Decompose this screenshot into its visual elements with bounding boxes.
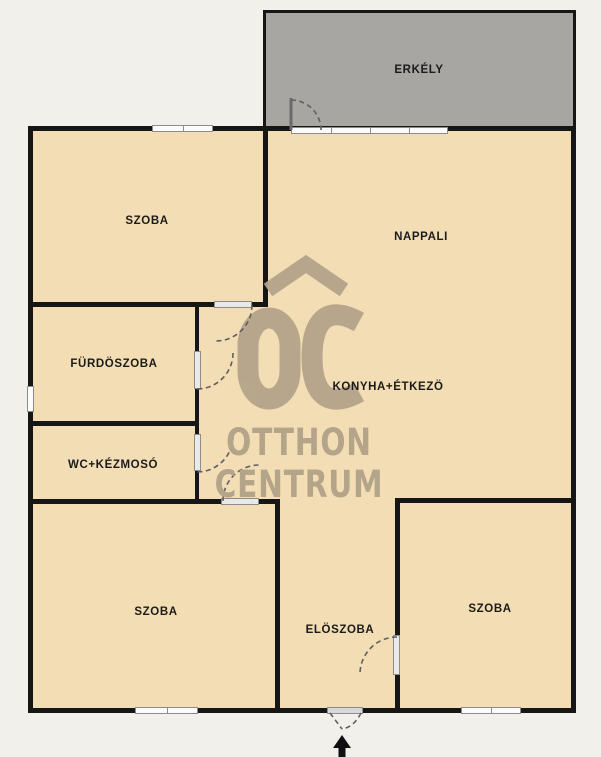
wall-furdo-wc-divider: [33, 421, 195, 426]
wall-eloszoba-szoba-a: [395, 503, 400, 636]
room-label-eloszoba: ELÖSZOBA: [306, 624, 375, 636]
wall-eloszoba-szoba-b: [395, 674, 400, 708]
room-label-furdoszoba: FÜRDÖSZOBA: [70, 358, 157, 370]
window-divider: [491, 708, 492, 713]
window-divider: [370, 128, 371, 133]
door-leaf-entrance: [327, 707, 363, 714]
wall-szoba-bl-right: [275, 503, 280, 708]
floorplan-canvas: OTTHON CENTRUM ERKÉLY SZOBA NAPPALI FÜRD…: [0, 0, 601, 757]
room-label-wc-kezmoso: WC+KÉZMOSÓ: [68, 459, 158, 471]
wall-furdo-right-a: [195, 307, 199, 352]
wall-szoba-tl-bottom-a: [33, 302, 214, 307]
room-label-nappali: NAPPALI: [394, 231, 448, 243]
room-label-konyha-etkezo: KONYHA+ÉTKEZÖ: [333, 381, 444, 393]
window-szoba-bl: [135, 707, 198, 714]
door-leaf-szoba-br: [393, 635, 400, 675]
room-label-erkely: ERKÉLY: [394, 64, 443, 76]
watermark-line2: CENTRUM: [215, 466, 384, 503]
room-label-szoba-bottom-left: SZOBA: [134, 606, 177, 618]
window-divider: [183, 126, 184, 131]
wall-outer-left: [28, 126, 33, 713]
room-label-szoba-bottom-right: SZOBA: [468, 603, 511, 615]
door-leaf-wc: [194, 434, 201, 471]
window-divider: [167, 708, 168, 713]
window-szoba-tl: [152, 125, 213, 132]
entrance-arrow-icon: [333, 735, 351, 757]
wall-szoba-tl-bottom-b: [252, 302, 268, 307]
room-label-szoba-top-left: SZOBA: [125, 215, 168, 227]
apartment-interior: [28, 126, 576, 713]
window-divider: [409, 128, 410, 133]
wall-szoba-br-top: [395, 498, 576, 503]
window-szoba-br: [461, 707, 521, 714]
window-balcony-glazing: [291, 127, 448, 134]
window-divider: [331, 128, 332, 133]
door-line-entrance: [330, 713, 342, 729]
wall-szoba-bl-top-a: [33, 499, 223, 504]
door-leaf-furdoszoba: [194, 351, 201, 389]
door-arc-entrance: [342, 713, 361, 729]
watermark-line1: OTTHON: [226, 424, 372, 461]
window-furdoszoba: [27, 386, 34, 412]
wall-outer-right: [571, 126, 576, 713]
wall-furdo-right-b: [195, 388, 199, 435]
wall-szoba-nappali: [263, 131, 268, 307]
door-leaf-szoba-tl: [214, 301, 252, 308]
